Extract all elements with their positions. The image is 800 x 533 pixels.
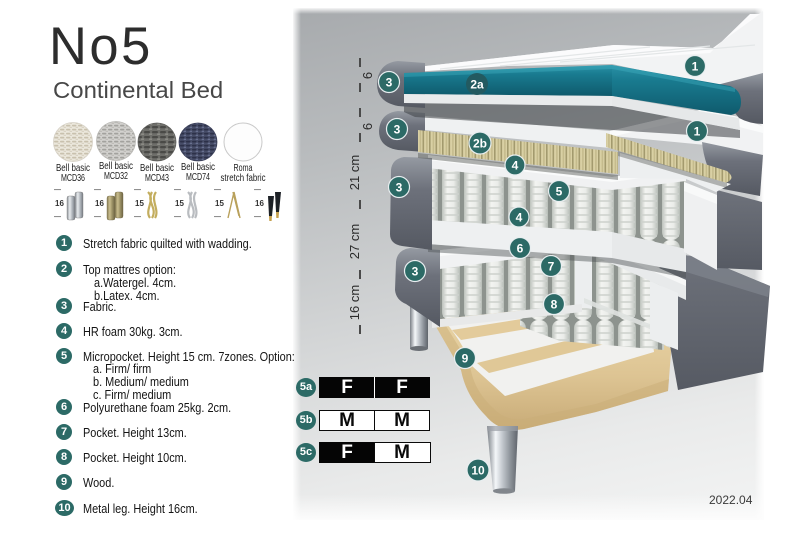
- svg-text:4: 4: [512, 159, 519, 173]
- svg-text:1: 1: [694, 125, 701, 139]
- svg-text:2b: 2b: [473, 137, 487, 151]
- svg-text:8: 8: [551, 298, 558, 312]
- svg-text:3: 3: [396, 181, 403, 195]
- svg-text:1: 1: [692, 60, 699, 74]
- svg-text:3: 3: [386, 76, 393, 90]
- svg-text:3: 3: [412, 265, 419, 279]
- svg-text:5: 5: [556, 185, 563, 199]
- svg-text:4: 4: [516, 211, 523, 225]
- svg-text:2a: 2a: [470, 78, 484, 92]
- svg-text:9: 9: [462, 352, 469, 366]
- svg-text:7: 7: [548, 260, 555, 274]
- svg-text:10: 10: [471, 464, 485, 478]
- svg-text:6: 6: [517, 242, 524, 256]
- svg-text:3: 3: [394, 123, 401, 137]
